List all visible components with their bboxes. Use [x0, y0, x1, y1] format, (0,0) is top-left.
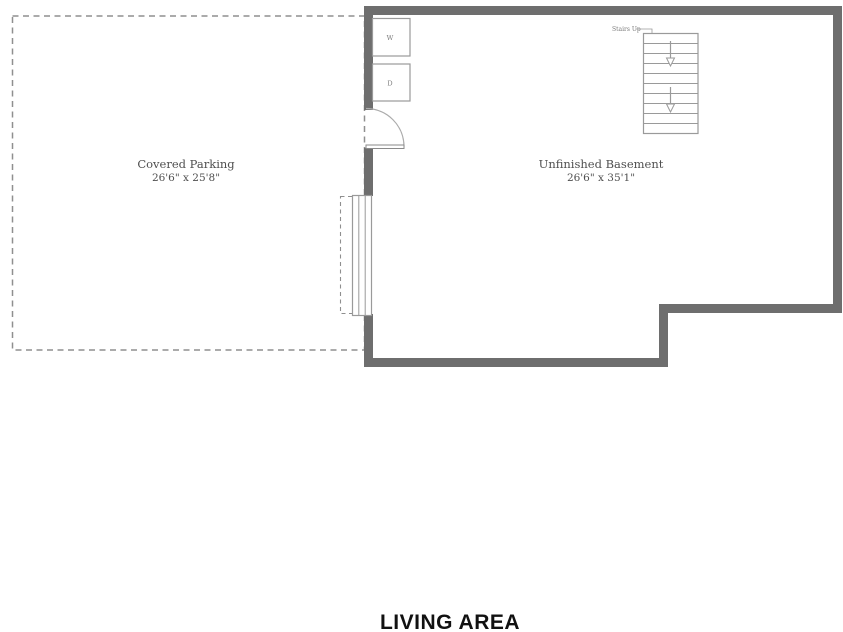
covered-parking-room: Covered Parking 26'6" x 25'8"	[137, 157, 235, 184]
wall-left-upper	[364, 6, 373, 110]
floorplan-page: W D Stairs Up Covered Parking 26'6" x 25…	[0, 0, 843, 632]
living-area-title: LIVING AREA	[380, 611, 520, 632]
wall-notch-left	[659, 304, 668, 367]
floorplan-svg: W D Stairs Up Covered Parking 26'6" x 25…	[0, 0, 843, 632]
basement-walls	[364, 6, 842, 367]
wall-left-mid	[364, 148, 373, 196]
wall-left-lower	[364, 314, 373, 367]
stairs-up-label: Stairs Up	[612, 26, 641, 33]
washer-label: W	[387, 34, 394, 42]
staircase: Stairs Up	[612, 26, 698, 134]
covered-parking-name: Covered Parking	[137, 157, 235, 171]
wall-bottom	[364, 358, 668, 367]
dryer-box: D	[373, 64, 411, 101]
door-swing-arc	[366, 109, 404, 147]
wall-right	[833, 6, 842, 313]
wall-notch-top	[659, 304, 842, 313]
washer-box: W	[373, 19, 411, 57]
unfinished-basement-name: Unfinished Basement	[539, 157, 664, 171]
window	[341, 196, 372, 316]
door-leaf	[366, 145, 404, 149]
unfinished-basement-room: Unfinished Basement 26'6" x 35'1"	[539, 157, 664, 184]
window-frame	[353, 196, 372, 316]
covered-parking-dimensions: 26'6" x 25'8"	[152, 172, 220, 184]
unfinished-basement-dimensions: 26'6" x 35'1"	[567, 172, 635, 184]
door	[366, 109, 404, 149]
dryer-label: D	[387, 80, 392, 88]
wall-top	[364, 6, 842, 15]
